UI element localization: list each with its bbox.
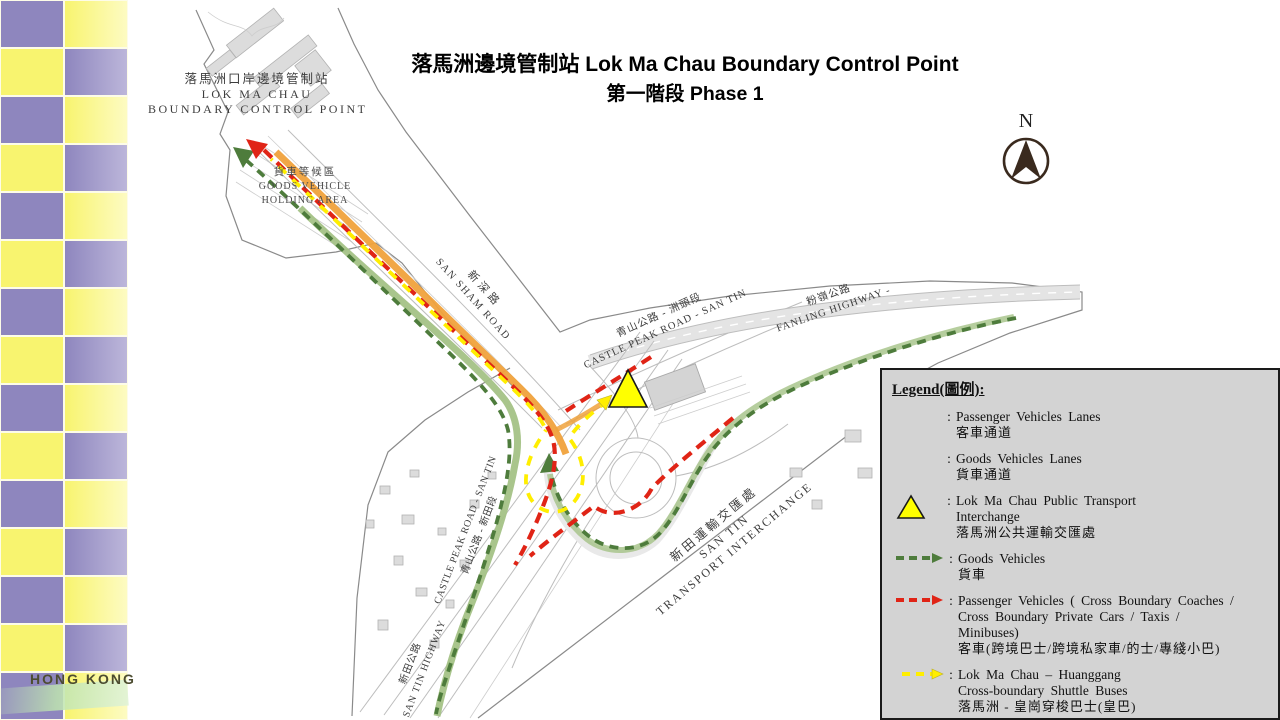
legend-text-zh: 落馬洲 - 皇崗穿梭巴士(皇巴) <box>958 699 1268 715</box>
checker-cell <box>0 432 64 480</box>
checker-cell <box>64 48 128 96</box>
checker-cell <box>0 288 64 336</box>
legend-text: Interchange <box>956 509 1268 525</box>
checker-cell <box>64 432 128 480</box>
legend-text: Goods Vehicles <box>958 551 1268 567</box>
north-compass-icon <box>1004 139 1048 183</box>
checker-cell <box>0 576 64 624</box>
title-line-2: 第一階段 Phase 1 <box>90 80 1280 108</box>
checker-cell <box>64 192 128 240</box>
checker-cell <box>64 96 128 144</box>
slide: 落馬洲口岸邊境管制站 LOK MA CHAU BOUNDARY CONTROL … <box>0 0 1280 720</box>
checker-cell <box>64 384 128 432</box>
red-dashed-arrow-icon <box>896 594 944 606</box>
legend-text: Passenger Vehicles ( Cross Boundary Coac… <box>958 593 1268 609</box>
legend-text: Cross-boundary Shuttle Buses <box>958 683 1268 699</box>
legend-text-zh: 客車通道 <box>956 425 1268 441</box>
passenger-lanes-band-branch <box>556 401 606 430</box>
label-goods-vehicle-holding-area: 貨車等候區 GOODS VEHICLE HOLDING AREA <box>243 166 367 208</box>
legend-text: Lok Ma Chau – Huanggang <box>958 667 1268 683</box>
sidebar-checkerboard <box>0 0 128 720</box>
title-line-1: 落馬洲邊境管制站 Lok Ma Chau Boundary Control Po… <box>90 50 1280 80</box>
legend-panel: Legend(圖例): : Passenger Vehicles Lanes 客… <box>880 368 1280 720</box>
checker-cell <box>64 528 128 576</box>
checker-cell <box>0 336 64 384</box>
legend-text-zh: 貨車 <box>958 567 1268 583</box>
checker-cell <box>0 480 64 528</box>
green-dashed-arrow-icon <box>896 552 944 564</box>
checker-cell <box>0 528 64 576</box>
legend-row-goods-vehicles: : Goods Vehicles 貨車 <box>892 551 1268 583</box>
checker-cell <box>0 0 64 48</box>
checker-cell <box>0 48 64 96</box>
checker-cell <box>64 144 128 192</box>
page-title: 落馬洲邊境管制站 Lok Ma Chau Boundary Control Po… <box>90 50 1280 108</box>
legend-text-zh: 貨車通道 <box>956 467 1268 483</box>
legend-row-passenger-lanes: : Passenger Vehicles Lanes 客車通道 <box>892 409 1268 441</box>
checker-cell <box>0 96 64 144</box>
checker-cell <box>64 624 128 672</box>
legend-title: Legend(圖例): <box>892 378 1268 399</box>
sidebar-brand: HONG KONG <box>30 671 136 687</box>
legend-row-goods-lanes: : Goods Vehicles Lanes 貨車通道 <box>892 451 1268 483</box>
checker-cell <box>64 0 128 48</box>
legend-text-zh: 落馬洲公共運輸交匯處 <box>956 525 1268 541</box>
legend-text-zh: 客車(跨境巴士/跨境私家車/的士/專綫小巴) <box>958 641 1268 657</box>
checker-cell <box>0 240 64 288</box>
checker-cell <box>64 576 128 624</box>
yellow-dashed-arrow-icon <box>896 668 944 680</box>
checker-cell <box>0 624 64 672</box>
checker-cell <box>0 192 64 240</box>
checker-cell <box>64 336 128 384</box>
checker-cell <box>64 480 128 528</box>
north-label: N <box>1014 110 1038 133</box>
pti-triangle-icon <box>896 494 926 520</box>
checker-cell <box>64 240 128 288</box>
checker-cell <box>0 384 64 432</box>
legend-row-shuttle-buses: : Lok Ma Chau – Huanggang Cross-boundary… <box>892 667 1268 715</box>
legend-text: Goods Vehicles Lanes <box>956 451 1268 467</box>
checker-cell <box>64 288 128 336</box>
legend-text: Passenger Vehicles Lanes <box>956 409 1268 425</box>
legend-row-passenger-vehicles: : Passenger Vehicles ( Cross Boundary Co… <box>892 593 1268 657</box>
legend-text: Minibuses) <box>958 625 1268 641</box>
legend-text: Cross Boundary Private Cars / Taxis / <box>958 609 1268 625</box>
legend-row-pti: : Lok Ma Chau Public Transport Interchan… <box>892 493 1268 541</box>
legend-text: Lok Ma Chau Public Transport <box>956 493 1268 509</box>
checker-cell <box>0 144 64 192</box>
